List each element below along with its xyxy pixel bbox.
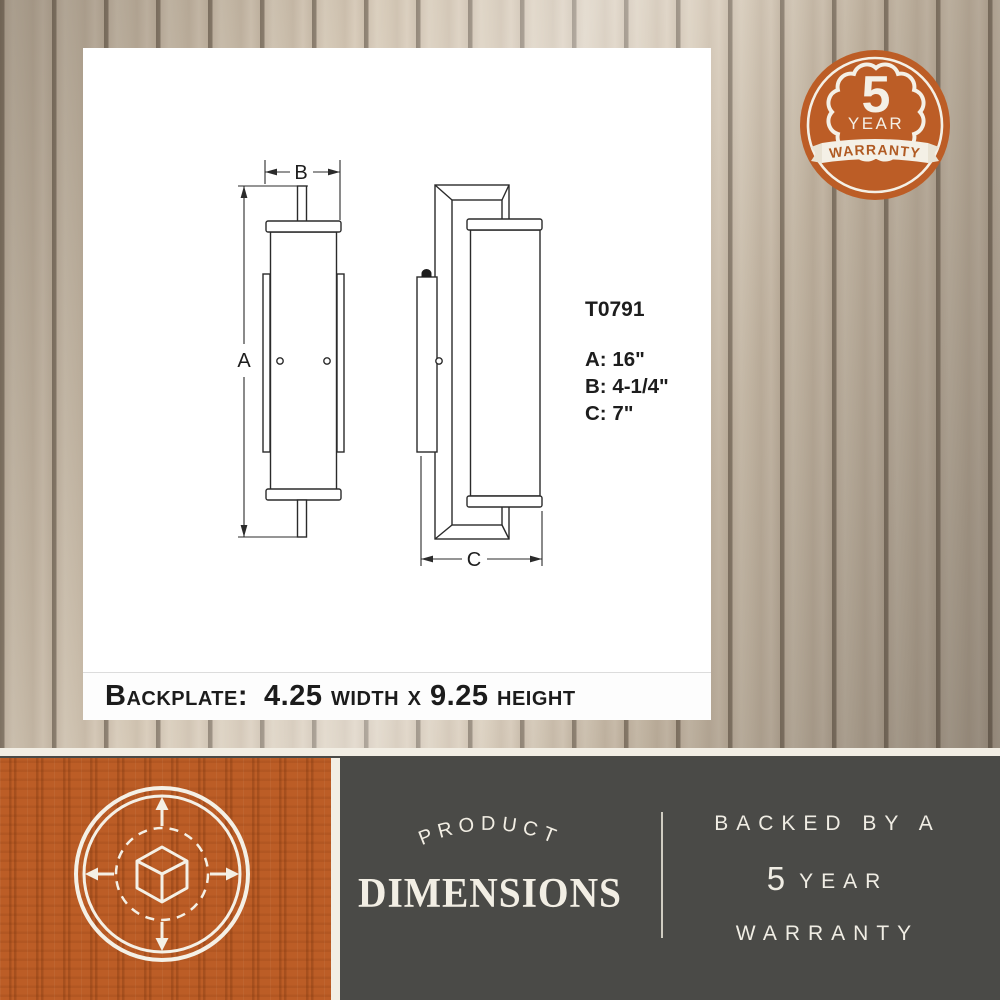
- product-arc-label: PRODUCT: [416, 813, 565, 850]
- svg-text:PRODUCT: PRODUCT: [416, 813, 565, 850]
- dim-spec-b: B: 4-1/4": [585, 375, 669, 398]
- product-arc: PRODUCT: [350, 778, 630, 873]
- badge-year-word: YEAR: [848, 114, 904, 133]
- footer-divider: [661, 812, 663, 938]
- cube-3d-measure-arrows-icon: [72, 784, 252, 964]
- dim-spec-a: A: 16": [585, 348, 645, 371]
- model-number: T0791: [585, 298, 645, 321]
- side-view: [417, 185, 542, 566]
- warranty-badge: 5 YEAR WARRANTY: [800, 50, 950, 200]
- backplate-label: Backplate:: [105, 680, 248, 713]
- backplate-note: Backplate: 4.25 width x 9.25 height: [83, 672, 711, 720]
- five-year-line: 5YEAR: [685, 860, 970, 898]
- product-dimensions-block: PRODUCT DIMENSIONS: [340, 770, 640, 1000]
- backed-by-line: BACKED BY A: [685, 812, 970, 836]
- dim-spec-c: C: 7": [585, 402, 633, 425]
- dimensions-icon-tile: [0, 758, 340, 1000]
- warranty-text-block: BACKED BY A 5YEAR WARRANTY: [685, 812, 970, 946]
- backplate-value: 4.25 width x 9.25 height: [264, 680, 576, 713]
- dim-marker-a: A: [237, 350, 251, 372]
- dim-marker-b: B: [294, 162, 307, 184]
- five-year-number: 5: [767, 860, 787, 897]
- drawing-card: A B C T0791 A: 16" B: 4-1/4" C: 7" Backp…: [83, 48, 711, 720]
- warranty-line: WARRANTY: [685, 922, 970, 946]
- product-dimensions-graphic: A B C T0791 A: 16" B: 4-1/4" C: 7" Backp…: [0, 0, 1000, 1000]
- five-year-word: YEAR: [799, 870, 888, 893]
- dim-marker-c: C: [467, 549, 481, 571]
- technical-drawing: A B C T0791 A: 16" B: 4-1/4" C: 7": [83, 48, 711, 672]
- front-view: [238, 160, 344, 537]
- dimensions-title: DIMENSIONS: [349, 870, 631, 918]
